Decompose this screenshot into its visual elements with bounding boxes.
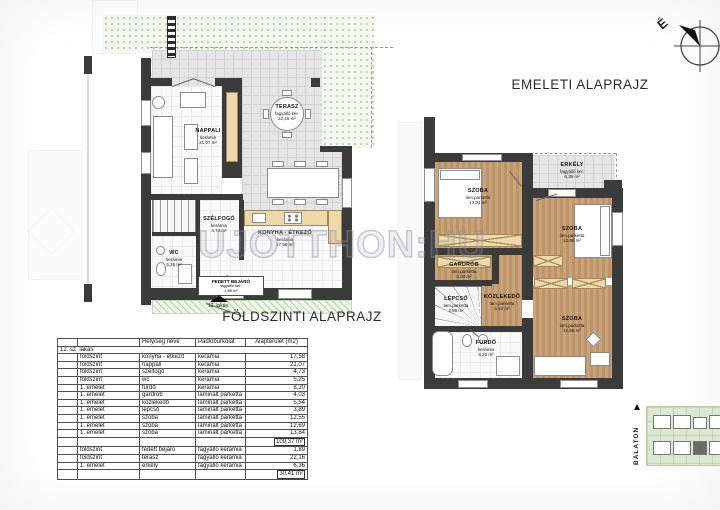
dining-table [267, 168, 339, 198]
cell-floor: földszint [78, 454, 140, 462]
cell-material: kerámia [196, 361, 246, 369]
cell-floor: 1. emelet [78, 407, 140, 415]
site-house [709, 415, 720, 429]
direction-arrow [634, 404, 640, 410]
window [612, 212, 623, 246]
table-total-row: 30,41 m² [58, 470, 308, 480]
cell-blank [58, 422, 78, 430]
cell-room: fedett bejáró [140, 447, 196, 455]
cell-area: 8,20 [246, 384, 308, 392]
cell-area: 12,55 [246, 414, 308, 422]
table-row: 1. emelet gardrób laminált parketta 4,03 [58, 392, 308, 400]
cell-room: nappali [140, 361, 196, 369]
wall [430, 280, 492, 286]
unit-label-cell: 12. sz. lakás [58, 346, 308, 354]
cell-blank [58, 470, 78, 480]
cell-material: laminált parketta [196, 422, 246, 430]
cell-material: laminált parketta [196, 430, 246, 438]
cooktop [284, 212, 302, 224]
cell-material: laminált parketta [196, 392, 246, 400]
wall [522, 153, 533, 248]
cell-area: 4,73 [246, 369, 308, 377]
neighbour-wall-stub [84, 56, 92, 74]
cell-room: szoba [140, 430, 196, 438]
adjacent-unit-ghost [398, 122, 422, 380]
entrance-marker [210, 295, 228, 302]
upper-floor-title: EMELETI ALAPRAJZ [505, 77, 655, 92]
table-group-row: 12. sz. lakás [58, 346, 308, 354]
tv-cabinet [180, 92, 206, 108]
wall [152, 232, 196, 236]
room-label-konyha: KONYHA - ÉTKEZŐ kerámia 17,58 m² [255, 230, 315, 247]
site-plan [646, 406, 720, 466]
table-row: 1. emelet erkély fagyálló kerámia 6,36 [58, 462, 308, 470]
room-label-szelfogo: SZÉLFOGÓ kerámia 4,73 m² [195, 216, 243, 233]
cell-floor: 1. emelet [78, 399, 140, 407]
table-row: földszint szélfogó kerámia 4,73 [58, 369, 308, 377]
floorplan-sheet: NAPPALI kerámia 21,07 m² TERASZ fagyálló… [0, 0, 720, 510]
header-blank [58, 339, 78, 347]
table-header-row: Helyiség neve Padlóburkolat Alapterület … [58, 339, 308, 347]
window [141, 152, 151, 174]
window [278, 289, 312, 299]
compass-icon: É [652, 8, 720, 78]
cell-blank [58, 414, 78, 422]
table-row: földszint wc kerámia 5,25 [58, 376, 308, 384]
wall [141, 78, 172, 86]
shower [496, 356, 520, 376]
cell-material: fagyálló kerámia [196, 462, 246, 470]
site-house [653, 441, 671, 455]
dining-chair [316, 161, 328, 167]
cell-material: kerámia [196, 376, 246, 384]
room-label-kozlekedo: KÖZLEKEDŐ lam.parketta 5,54 m² [476, 294, 528, 311]
room-label-szoba-2: SZOBA lam.parketta 12,69 m² [546, 226, 598, 243]
section-marker [311, 78, 320, 87]
cell-floor: 1. emelet [78, 462, 140, 470]
cell-blank [140, 437, 196, 447]
wall [430, 248, 530, 255]
window [141, 100, 151, 126]
cell-floor: 1. emelet [78, 384, 140, 392]
terrace-chair [282, 132, 292, 138]
dining-chair [294, 199, 306, 205]
terrace-chair [282, 90, 292, 96]
wall [141, 58, 151, 305]
cell-room: fürdő [140, 384, 196, 392]
table-row: 1. emelet fürdő kerámia 8,20 [58, 384, 308, 392]
room-label-szoba-1: SZOBA lam.parketta 13,84 m² [452, 188, 504, 205]
sofa [153, 116, 173, 178]
table-total-row: 109,37 m² [58, 437, 308, 447]
property-line [87, 60, 89, 300]
cell-area: 4,03 [246, 392, 308, 400]
cell-blank [58, 447, 78, 455]
site-house [673, 415, 691, 429]
compass-north-label: É [654, 15, 671, 32]
cell-area: 21,07 [246, 361, 308, 369]
site-house [709, 441, 720, 455]
roof-overhang-line [371, 47, 372, 148]
wall [604, 180, 622, 190]
cell-blank [58, 376, 78, 384]
coffee-table [184, 158, 198, 184]
wall [492, 248, 499, 284]
garden-area [322, 15, 375, 148]
header-blank [78, 339, 140, 347]
cell-material: laminált parketta [196, 407, 246, 415]
wardrobe [534, 278, 568, 289]
bed-pillow [600, 206, 610, 256]
cell-room: szoba [140, 414, 196, 422]
exterior-total: 30,41 m² [277, 470, 305, 479]
cell-material: fagyálló kerámia [196, 447, 246, 455]
site-house [693, 417, 707, 429]
cell-total: 109,37 m² [246, 437, 308, 447]
site-house [653, 415, 671, 429]
ground-floor-title: FÖLDSZINTI ALAPRAJZ [222, 309, 382, 324]
cell-floor: földszint [78, 447, 140, 455]
room-label-lepcso: LÉPCSŐ lam.parketta 3,89 m² [432, 296, 480, 313]
table-row: 1. emelet szoba laminált parketta 13,84 [58, 430, 308, 438]
cell-blank [58, 407, 78, 415]
section-cut-bar [167, 16, 176, 58]
header-area: Alapterület (m2) [246, 339, 308, 347]
room-label-terasz: TERASZ fagyálló ker. 22,16 m² [261, 104, 313, 121]
cell-room: erkély [140, 462, 196, 470]
balaton-label: BALATON [633, 413, 640, 465]
bathtub [432, 331, 453, 376]
cell-area: 13,84 [246, 430, 308, 438]
cell-area: 12,69 [246, 422, 308, 430]
room-label-szoba-3: SZOBA lam.parketta 12,55 m² [546, 316, 598, 333]
site-house [673, 441, 691, 455]
bed [534, 356, 586, 376]
armchair [152, 96, 165, 109]
cell-blank [58, 384, 78, 392]
window [462, 154, 502, 161]
dining-chair [272, 199, 284, 205]
cell-area: 5,25 [246, 376, 308, 384]
cell-floor: földszint [78, 376, 140, 384]
room-label-furdo: FÜRDŐ kerámia 8,20 m² [462, 340, 510, 357]
cell-blank [58, 392, 78, 400]
cell-room: gardrób [140, 392, 196, 400]
table-row: 1. emelet szoba laminált parketta 12,69 [58, 422, 308, 430]
cell-blank [196, 437, 246, 447]
kitchen-sink [252, 213, 266, 223]
cell-total: 30,41 m² [246, 470, 308, 480]
header-room: Helyiség neve [140, 339, 196, 347]
cell-floor: földszint [78, 354, 140, 362]
cell-material: fagyálló kerámia [196, 454, 246, 462]
cell-area: 6,36 [246, 462, 308, 470]
cell-floor: 1. emelet [78, 422, 140, 430]
wardrobe [572, 278, 606, 289]
cell-room: lépcső [140, 407, 196, 415]
wardrobe [533, 255, 563, 267]
cell-floor: 1. emelet [78, 392, 140, 400]
cell-blank [58, 399, 78, 407]
cell-material: kerámia [196, 384, 246, 392]
cell-material: laminált parketta [196, 399, 246, 407]
cell-blank [58, 454, 78, 462]
cell-floor: 1. emelet [78, 430, 140, 438]
window [424, 168, 435, 202]
dining-chair [272, 161, 284, 167]
wall [342, 148, 352, 300]
bed-pillow [440, 170, 480, 180]
cell-blank [196, 470, 246, 480]
cell-blank [58, 462, 78, 470]
room-label-nappali: NAPPALI kerámia 21,07 m² [182, 128, 234, 145]
window [560, 380, 598, 388]
dining-chair [316, 199, 328, 205]
wall [320, 146, 352, 152]
balcony-edge-line [530, 153, 616, 154]
neighbour-wall-stub [84, 284, 92, 302]
cell-room: szélfogó [140, 369, 196, 377]
table-row: földszint fedett bejáró fagyálló kerámia… [58, 447, 308, 455]
wardrobe [438, 234, 522, 247]
site-house-highlighted [693, 441, 707, 455]
room-label-gardrob: GARDRÓB lam.parketta 4,03 m² [438, 262, 490, 279]
dining-chair [294, 161, 306, 167]
built-in-cabinet [226, 92, 238, 162]
room-label-erkely: ERKÉLY fagyálló ker. 6,36 m² [546, 162, 598, 179]
cell-material: laminált parketta [196, 414, 246, 422]
cell-area: 17,58 [246, 354, 308, 362]
room-label-wc: WC kerámia 5,25 m² [150, 250, 198, 267]
room-szelfogo [200, 200, 242, 288]
cell-blank [58, 430, 78, 438]
area-table: Helyiség neve Padlóburkolat Alapterület … [57, 338, 308, 480]
cell-room: szoba [140, 422, 196, 430]
room-label-fedett-bejaro: FEDETT BEJÁRÓ fagyálló ker. 1,89 m² [198, 276, 264, 296]
header-material: Padlóburkolat [196, 339, 246, 347]
cell-blank [58, 354, 78, 362]
cell-blank [58, 361, 78, 369]
cell-room: wc [140, 376, 196, 384]
cell-room: konyha - étkező [140, 354, 196, 362]
interior-total: 109,37 m² [274, 438, 305, 447]
table-row: földszint terasz fagyálló kerámia 22,16 [58, 454, 308, 462]
wall [196, 200, 200, 288]
table-row: földszint nappali kerámia 21,07 [58, 361, 308, 369]
cell-material: kerámia [196, 354, 246, 362]
table-row: földszint konyha - étkező kerámia 17,58 [58, 354, 308, 362]
fridge [328, 210, 342, 244]
wall [522, 248, 533, 300]
table-row: 1. emelet szoba laminált parketta 12,55 [58, 414, 308, 422]
cell-area: 22,16 [246, 454, 308, 462]
staircase-ground [152, 196, 196, 234]
cell-floor: 1. emelet [78, 414, 140, 422]
table-row: 1. emelet közlekedő laminált parketta 5,… [58, 399, 308, 407]
cell-area: 5,54 [246, 399, 308, 407]
desk [590, 352, 610, 366]
cell-area: 1,89 [246, 447, 308, 455]
cell-floor: földszint [78, 369, 140, 377]
cell-material: kerámia [196, 369, 246, 377]
window [342, 178, 352, 208]
cell-room: közlekedő [140, 399, 196, 407]
cell-floor: földszint [78, 361, 140, 369]
roof-overhang-line [150, 47, 393, 48]
window [458, 380, 488, 388]
cell-area: 3,89 [246, 407, 308, 415]
cell-blank [78, 470, 140, 480]
cell-blank [58, 437, 78, 447]
table-row: 1. emelet lépcső laminált parketta 3,89 [58, 407, 308, 415]
cell-blank [78, 437, 140, 447]
cell-blank [140, 470, 196, 480]
cell-room: terasz [140, 454, 196, 462]
cell-blank [58, 369, 78, 377]
